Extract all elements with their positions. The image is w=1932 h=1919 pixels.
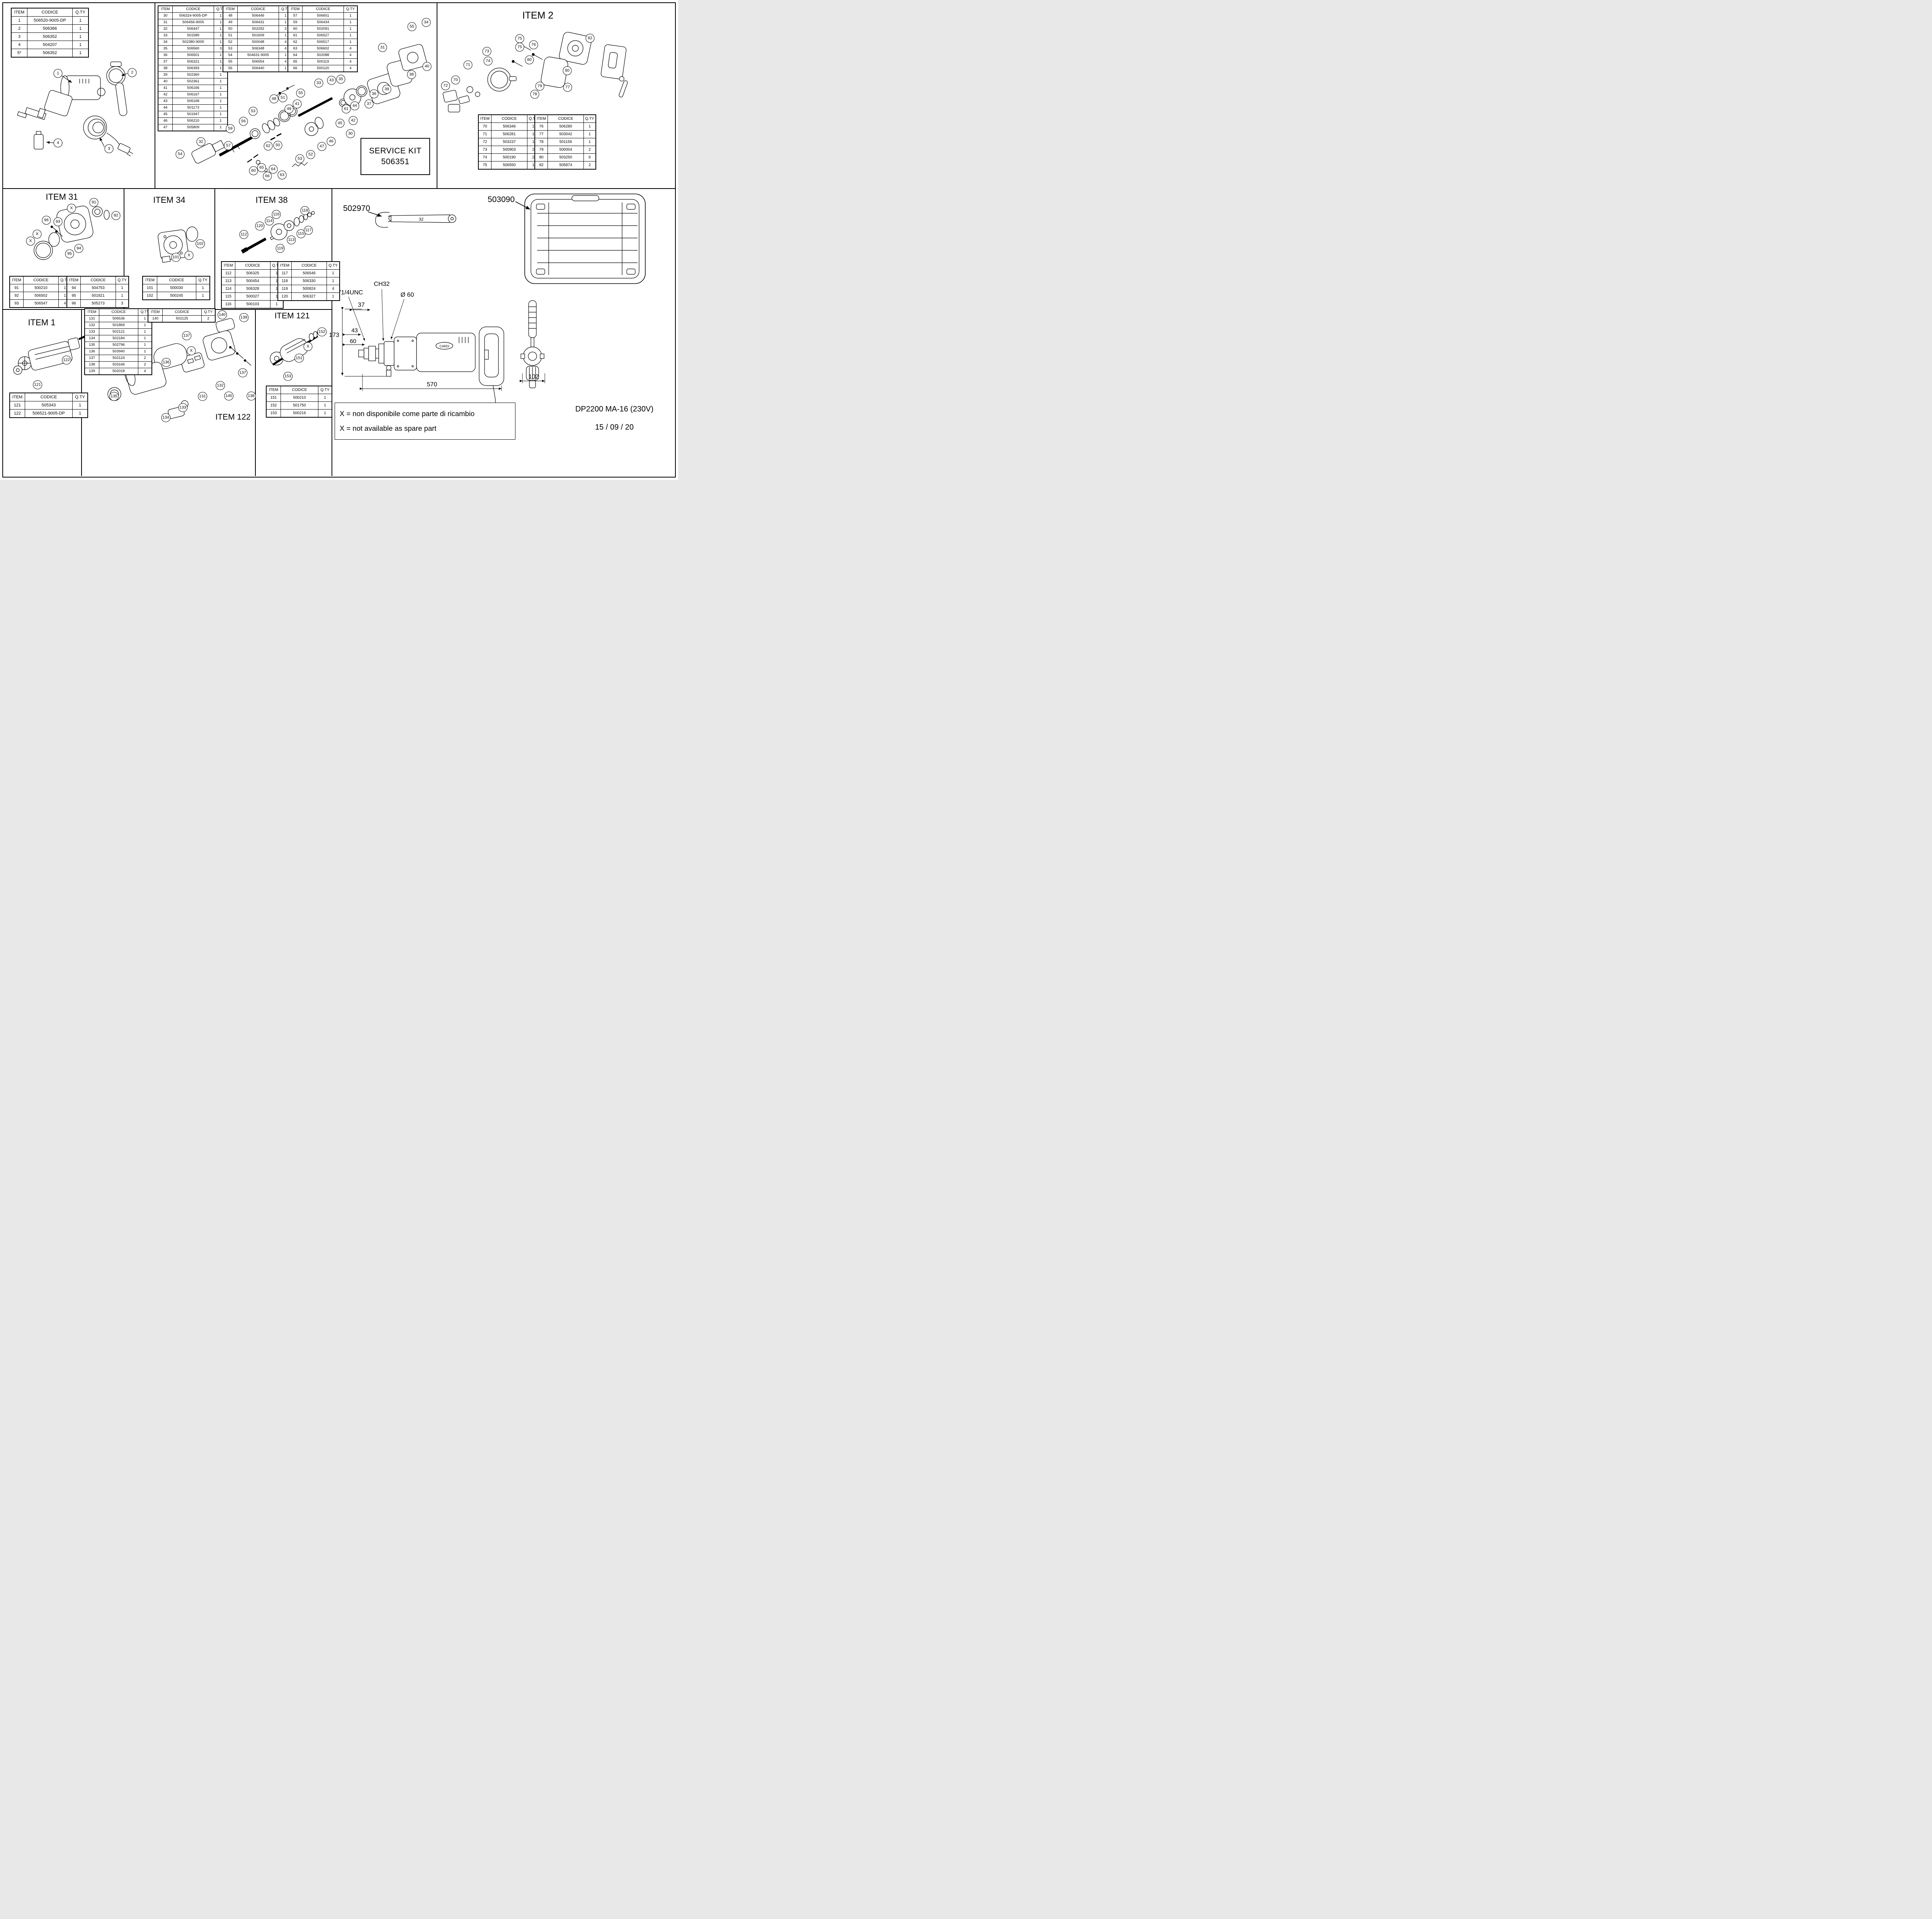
table-row: 645020884 [288,52,357,59]
table-row: 1365039401 [85,348,152,355]
table-row: 1535002161 [266,410,332,418]
table-row: 35063521 [11,33,88,41]
table-cell: 2 [584,146,596,154]
table-cell: 500245 [157,292,196,300]
table-row: 1345021841 [85,335,152,342]
divider [437,3,437,189]
table-cell: 115 [221,293,235,301]
table-header: CODICE [27,8,73,17]
table-cell: 506330 [292,277,327,285]
table-header: Q.TY [202,309,216,316]
table-cell: 4 [344,46,358,52]
table-header: Q.TY [327,262,340,270]
table-cell: 41 [158,85,173,92]
table-cell: 506167 [173,92,214,98]
table-item31-a: ITEMCODICEQ.TY91500210192506502193506547… [9,276,72,308]
table-header: CODICE [238,6,279,13]
table-cell: 47 [158,124,173,131]
table-cell: 503042 [548,131,584,138]
table-cell: 60 [288,26,303,32]
table-cell: 1 [344,39,358,46]
table-cell: 56 [223,65,238,72]
table-cell: 92 [10,292,24,300]
table-cell: 3 [11,33,27,41]
table-cell: 94 [67,284,81,292]
table-row: 1405021252 [148,316,215,323]
table-cell: 131 [85,316,99,322]
table-row: 1165001031 [221,301,283,309]
table-item122-a: ITEMCODICEQ.TY13150653611325018691133502… [84,308,152,375]
table-cell: 506536 [99,316,138,322]
table-row: 415061661 [158,85,228,92]
note-english: X = not available as spare part [340,424,515,433]
table-cell: 506431 [238,19,279,26]
table-cell: 506346 [492,123,527,131]
table-cell: 1 [196,292,210,300]
table-cell: 36 [158,52,173,59]
table-row: 705063461 [478,123,539,131]
table-row: 1205063271 [278,293,340,301]
table-row: 915002101 [10,284,71,292]
table-cell: 53 [223,46,238,52]
table-cell: 502796 [99,342,138,348]
table-row: 1395020184 [85,368,152,375]
table-cell: 1 [214,98,228,105]
table-header: CODICE [157,276,196,284]
table-cell: 506210 [173,118,214,124]
table-cell: 1 [214,118,228,124]
table-cell: 96 [67,300,81,308]
table-row: 1515002101 [266,394,332,402]
table-cell: 506456-9005 [173,19,214,26]
service-kit-line1: SERVICE KIT [369,146,422,156]
table-cell: 1 [344,13,358,19]
table-cell: 501947 [173,111,214,118]
table-header: CODICE [292,262,327,270]
table-cell: 2 [202,316,216,323]
table-cell: 4 [344,52,358,59]
table-cell: 119 [278,285,292,293]
table-cell: 116 [221,301,235,309]
table-header: Q.TY [196,276,210,284]
table-cell: 504753 [81,284,116,292]
table-row: 795000042 [535,146,596,154]
table-cell: 1 [214,111,228,118]
table-cell: 136 [85,348,99,355]
table-row: 405023611 [158,78,228,85]
table-cell: 506324-9005-DP [173,13,214,19]
table-row: 595064341 [288,19,357,26]
table-header: Q.TY [584,115,596,123]
table-header: CODICE [492,115,527,123]
table-row: 435061681 [158,98,228,105]
item121-title: ITEM 121 [265,311,319,321]
table-row: 395023601 [158,72,228,78]
table-row: 54504631-90051 [223,52,293,59]
table-row: 555065544 [223,59,293,65]
table-cell: 500004 [548,146,584,154]
table-header: CODICE [25,393,73,401]
table-cell: 52 [223,39,238,46]
table-cell: 1 [138,342,152,348]
table-cell: 102 [143,292,157,300]
table-row: 355065603 [158,46,228,52]
table-header: ITEM [278,262,292,270]
table-row: 1525017501 [266,402,332,410]
table-item2-a: ITEMCODICEQ.TY70506346171506281172503237… [478,114,540,170]
table-cell: 42 [158,92,173,98]
table-cell: 39 [158,72,173,78]
table-cell: 1 [214,78,228,85]
table-cell: 46 [158,118,173,124]
table-cell: 151 [266,394,281,402]
table-cell: 140 [148,316,163,323]
table-row: 515016091 [223,32,293,39]
table-header: ITEM [158,6,173,13]
table-row: 1506520-9005-DP1 [11,17,88,25]
item38-title: ITEM 38 [243,195,301,205]
table-cell: 1 [116,284,129,292]
drawing-sheet: 1"1/4UNC 37 CH32 Ø 60 173 43 60 570 102 … [0,0,678,480]
table-cell: 502121 [99,329,138,335]
table-header: ITEM [266,386,281,394]
table-cell: 91 [10,284,24,292]
table-cell: 1 [73,401,88,410]
divider [255,309,256,476]
table-cell: 62 [288,39,303,46]
table-cell: 501609 [238,32,279,39]
table-cell: 2 [11,25,27,33]
table-row: 365065011 [158,52,228,59]
table-cell: 1 [318,402,332,410]
table-cell: 139 [85,368,99,375]
table-header: Q.TY [73,8,89,17]
table-header: CODICE [235,262,270,270]
table-cell: 33 [158,32,173,39]
table-row: 525000484 [223,39,293,46]
table-cell: 506527 [303,32,344,39]
table-header: ITEM [478,115,492,123]
table-cell: 1 [327,293,340,301]
table-cell: 506601 [303,13,344,19]
table-cell: 1 [73,17,89,25]
table-header: ITEM [67,276,81,284]
table-header: ITEM [148,309,163,316]
case-code-label: 503090 [484,195,519,204]
table-row: 725032371 [478,138,539,146]
table-cell: 500048 [238,39,279,46]
table-cell: 504631-9005 [238,52,279,59]
table-cell: 50 [223,26,238,32]
table-cell: 114 [221,285,235,293]
table-cell: 122 [10,410,25,418]
table-row: 31506456-90051 [158,19,228,26]
divider [332,188,332,476]
table-cell: 1 [344,26,358,32]
table-cell: 2 [584,161,596,170]
table-item38-a: ITEMCODICEQ.TY11250632511135004541114506… [221,261,284,309]
table-cell: 63 [288,46,303,52]
table-cell: 1 [138,348,152,355]
table-cell: 1 [584,131,596,138]
table-cell: 502361 [173,78,214,85]
table-cell: 506366 [27,25,73,33]
table-cell: 502125 [163,316,202,323]
table-cell: 506393 [173,65,214,72]
note-italian: X = non disponibile come parte di ricamb… [340,410,515,418]
table-cell: 506328 [235,285,270,293]
table-row: 5*5063521 [11,49,88,58]
table-cell: 500903 [492,146,527,154]
table-cell: 4 [344,65,358,72]
table-cell: 506602 [303,46,344,52]
table-cell: 505343 [25,401,73,410]
table-item121: ITEMCODICEQ.TY15150021011525017501153500… [266,386,332,418]
table-row: 375063211 [158,59,228,65]
table-cell: 59 [288,19,303,26]
item2-title: ITEM 2 [507,10,569,21]
table-cell: 3 [116,300,129,308]
table-cell: 93 [10,300,24,308]
table-cell: 500103 [235,301,270,309]
table-cell: 78 [535,138,548,146]
table-header: CODICE [163,309,202,316]
table-row: 965052733 [67,300,129,308]
table-cell: 502380-9005 [173,39,214,46]
table-cell: 134 [85,335,99,342]
table-row: 665001204 [288,65,357,72]
table-cell: 502360 [173,72,214,78]
table-row: 605020911 [288,26,357,32]
table-cell: 502088 [303,52,344,59]
table-cell: 1 [214,92,228,98]
table-cell: 152 [266,402,281,410]
table-exploded-c: ITEMCODICEQ.TY57506601159506434160502091… [287,5,358,72]
table-header: CODICE [173,6,214,13]
table-cell: 1 [73,410,88,418]
table-row: 1355027961 [85,342,152,348]
table-header: ITEM [223,6,238,13]
table-cell: 503940 [99,348,138,355]
table-cell: 506166 [173,85,214,92]
table-cell: 506327 [292,293,327,301]
service-kit-box: SERVICE KIT 506351 [361,138,430,175]
table-cell: 82 [535,161,548,170]
table-cell: 501869 [99,322,138,329]
table-cell: 500120 [303,65,344,72]
table-cell: 506560 [173,46,214,52]
table-cell: 506352 [27,49,73,58]
table-cell: 70 [478,123,492,131]
table-exploded-a: ITEMCODICEQ.TY30506324-9005-DP131506456-… [158,5,228,131]
table-cell: 4 [138,368,152,375]
table-cell: 77 [535,131,548,138]
table-cell: 133 [85,329,99,335]
table-row: 122506521-9005-DP1 [10,410,88,418]
table-row: 1325018691 [85,322,152,329]
table-cell: 48 [223,13,238,19]
table-row: 335015891 [158,32,228,39]
table-row: 655001194 [288,59,357,65]
table-cell: 73 [478,146,492,154]
table-cell: 500210 [281,394,318,402]
title-block: DP2200 MA-16 (230V) 15 / 09 / 20 [556,405,672,432]
table-cell: 506546 [292,270,327,277]
table-row: 825058742 [535,161,596,170]
table-cell: 113 [221,277,235,285]
table-cell: 4 [344,59,358,65]
table-row: 1025002451 [143,292,210,300]
table-cell: 506168 [173,98,214,105]
table-main: ITEMCODICEQ.TY1506520-9005-DP12506366135… [11,8,89,58]
item34-title: ITEM 34 [142,195,196,205]
table-header: Q.TY [116,276,129,284]
table-cell: 118 [278,277,292,285]
table-row: 1315065361 [85,316,152,322]
table-row: 425061671 [158,92,228,98]
table-cell: 137 [85,355,99,362]
table-cell: 1 [11,17,27,25]
table-header: ITEM [10,276,24,284]
table-cell: 502184 [99,335,138,342]
table-cell: 503237 [492,138,527,146]
table-cell: 506440 [238,65,279,72]
table-row: 565064401 [223,65,293,72]
table-cell: 54 [223,52,238,59]
table-cell: 1 [138,322,152,329]
table-row: 1375021242 [85,355,152,362]
table-header: CODICE [99,309,138,316]
table-cell: 120 [278,293,292,301]
table-cell: 5* [11,49,27,58]
table-header: ITEM [288,6,303,13]
table-cell: 1 [584,123,596,131]
table-item38-b: ITEMCODICEQ.TY11750654611185063301119500… [277,261,340,301]
table-cell: 500119 [303,59,344,65]
table-cell: 74 [478,154,492,161]
table-row: 45042071 [11,41,88,49]
table-cell: 101 [143,284,157,292]
table-item31-b: ITEMCODICEQ.TY94504753195501821196505273… [66,276,129,308]
table-cell: 38 [158,65,173,72]
table-cell: 35 [158,46,173,52]
table-row: 385063931 [158,65,228,72]
table-cell: 500454 [235,277,270,285]
table-cell: 1 [327,270,340,277]
table-row: 495064311 [223,19,293,26]
table-cell: 2 [138,362,152,368]
table-row: 925065021 [10,292,71,300]
table-cell: 49 [223,19,238,26]
model-name: DP2200 MA-16 (230V) [575,405,653,414]
table-cell: 501156 [548,138,584,146]
table-cell: 1 [214,85,228,92]
table-cell: 76 [535,123,548,131]
table-cell: 32 [158,26,173,32]
table-cell: 72 [478,138,492,146]
table-cell: 500030 [157,284,196,292]
table-row: 745001902 [478,154,539,161]
table-cell: 1 [116,292,129,300]
table-row: 505022923 [223,26,293,32]
table-cell: 117 [278,270,292,277]
table-cell: 75 [478,161,492,170]
table-header: CODICE [281,386,318,394]
table-cell: 506321 [173,59,214,65]
table-cell: 31 [158,19,173,26]
table-row: 1015000301 [143,284,210,292]
table-cell: 51 [223,32,238,39]
table-row: 1125063251 [221,270,283,277]
table-cell: 112 [221,270,235,277]
table-row: 465062101 [158,118,228,124]
table-cell: 505273 [81,300,116,308]
table-exploded-b: ITEMCODICEQ.TY48506446149506431150502292… [223,5,293,72]
table-cell: 501589 [173,32,214,39]
table-row: 635066024 [288,46,357,52]
table-cell: 503166 [99,362,138,368]
table-row: 34502380-90051 [158,39,228,46]
item31-title: ITEM 31 [33,192,91,202]
table-cell: 505874 [548,161,584,170]
table-row: 1215053431 [10,401,88,410]
table-cell: 4 [11,41,27,49]
table-header: CODICE [81,276,116,284]
table-row: 625065171 [288,39,357,46]
table-cell: 506447 [173,26,214,32]
table-row: 765062801 [535,123,596,131]
table-row: 755065501 [478,161,539,170]
table-cell: 1 [214,105,228,111]
table-cell: 506446 [238,13,279,19]
table-header: ITEM [535,115,548,123]
table-item2-b: ITEMCODICEQ.TY76506280177503042178501156… [534,114,596,170]
table-cell: 504207 [27,41,73,49]
table-cell: 1 [196,284,210,292]
table-cell: 95 [67,292,81,300]
table-cell: 506501 [173,52,214,59]
table-cell: 500190 [492,154,527,161]
table-row: 445011731 [158,105,228,111]
table-cell: 79 [535,146,548,154]
table-cell: 1 [73,25,89,33]
table-row: 475058091 [158,124,228,131]
wrench-code-label: 502970 [339,204,374,213]
table-cell: 1 [344,19,358,26]
table-cell: 1 [214,72,228,78]
table-cell: 40 [158,78,173,85]
table-cell: 1 [214,124,228,131]
table-row: 1385031662 [85,362,152,368]
table-cell: 43 [158,98,173,105]
table-row: 325064471 [158,26,228,32]
table-cell: 34 [158,39,173,46]
table-cell: 57 [288,13,303,19]
table-cell: 505809 [173,124,214,131]
table-cell: 501750 [281,402,318,410]
table-row: 715062811 [478,131,539,138]
table-row: 785011561 [535,138,596,146]
table-cell: 37 [158,59,173,65]
table-header: ITEM [10,393,25,401]
table-row: 805032506 [535,154,596,161]
table-row: 735009032 [478,146,539,154]
table-cell: 506554 [238,59,279,65]
table-cell: 1 [584,138,596,146]
table-row: 955018211 [67,292,129,300]
table-header: ITEM [143,276,157,284]
table-item122-b: ITEMCODICEQ.TY1405021252 [148,308,216,323]
